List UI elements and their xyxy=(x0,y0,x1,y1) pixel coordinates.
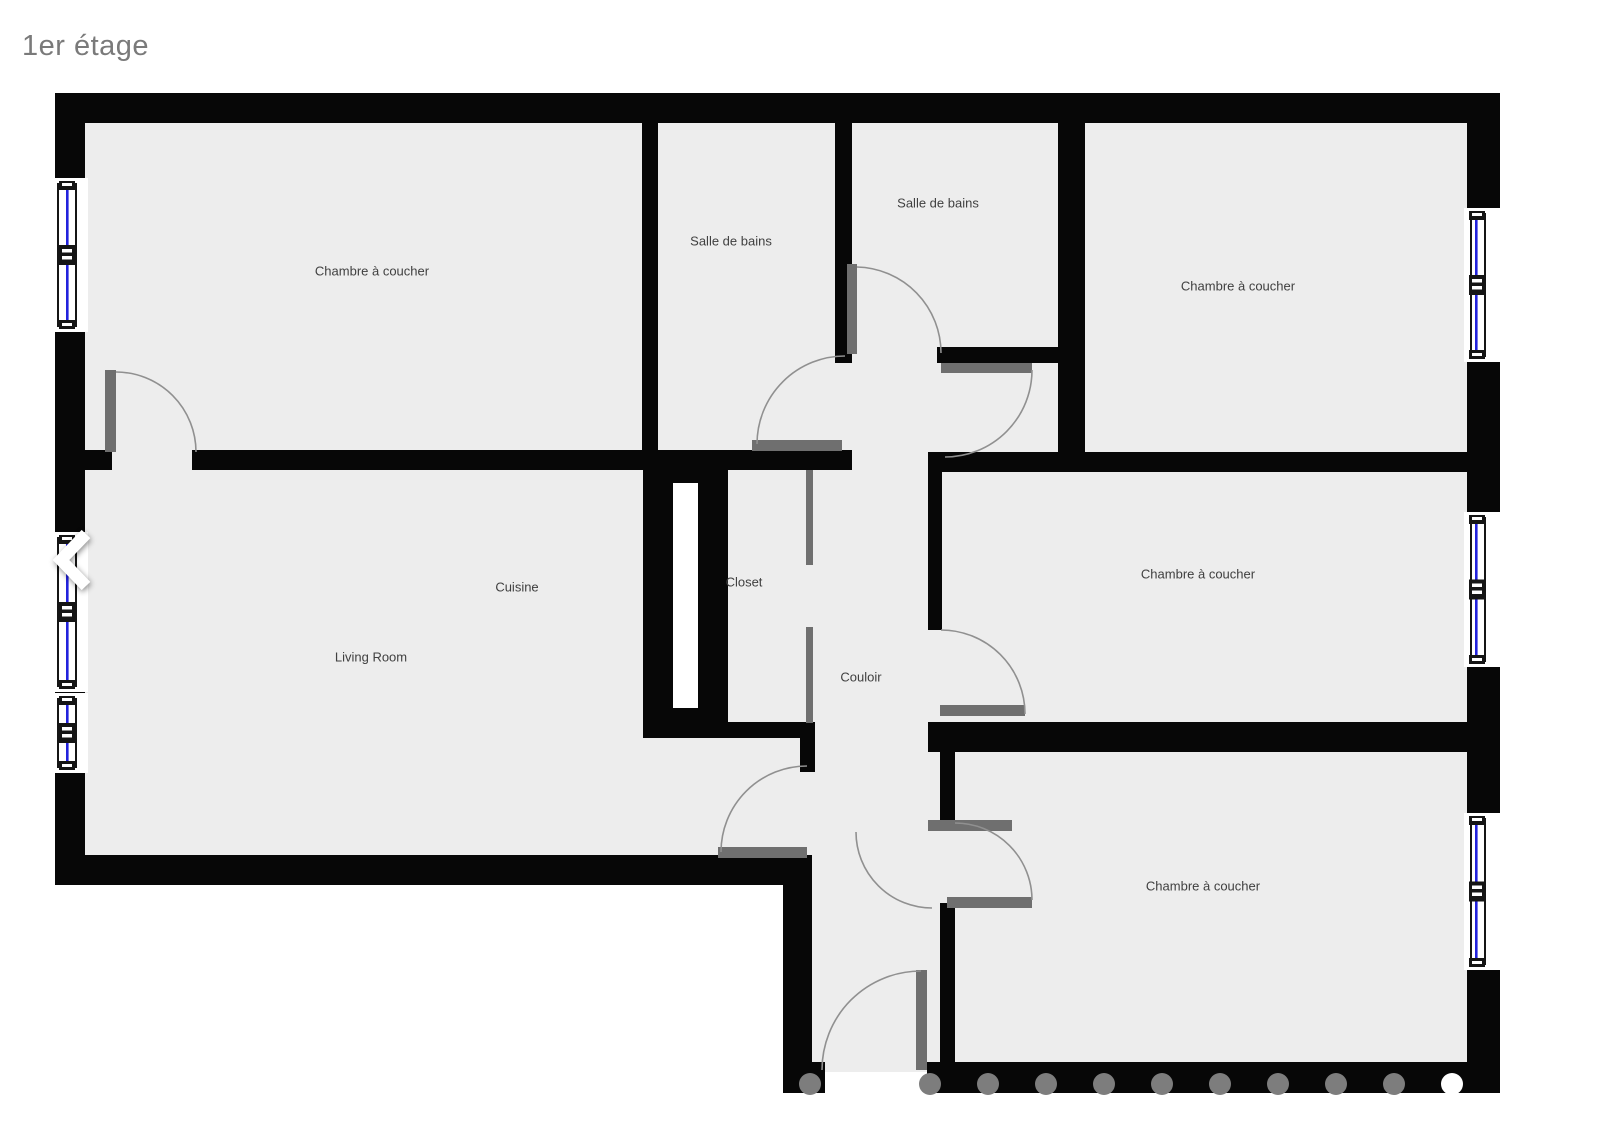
chevron-left-icon[interactable] xyxy=(61,534,86,586)
carousel-dot[interactable] xyxy=(799,1073,821,1095)
carousel-dot[interactable] xyxy=(977,1073,999,1095)
carousel-dot[interactable] xyxy=(1267,1073,1289,1095)
carousel-dot[interactable] xyxy=(1209,1073,1231,1095)
carousel-dot[interactable] xyxy=(1383,1073,1405,1095)
carousel-dots xyxy=(799,1073,1463,1095)
carousel-dot[interactable] xyxy=(1151,1073,1173,1095)
carousel-dot[interactable] xyxy=(1325,1073,1347,1095)
carousel-dot[interactable] xyxy=(1093,1073,1115,1095)
carousel-dot-active[interactable] xyxy=(1441,1073,1463,1095)
carousel-image-viewer: 1er étage Chambre à coucherSalle de bain… xyxy=(0,0,1600,1132)
carousel-overlay xyxy=(0,0,1600,1132)
carousel-dot[interactable] xyxy=(1035,1073,1057,1095)
carousel-dot[interactable] xyxy=(919,1073,941,1095)
